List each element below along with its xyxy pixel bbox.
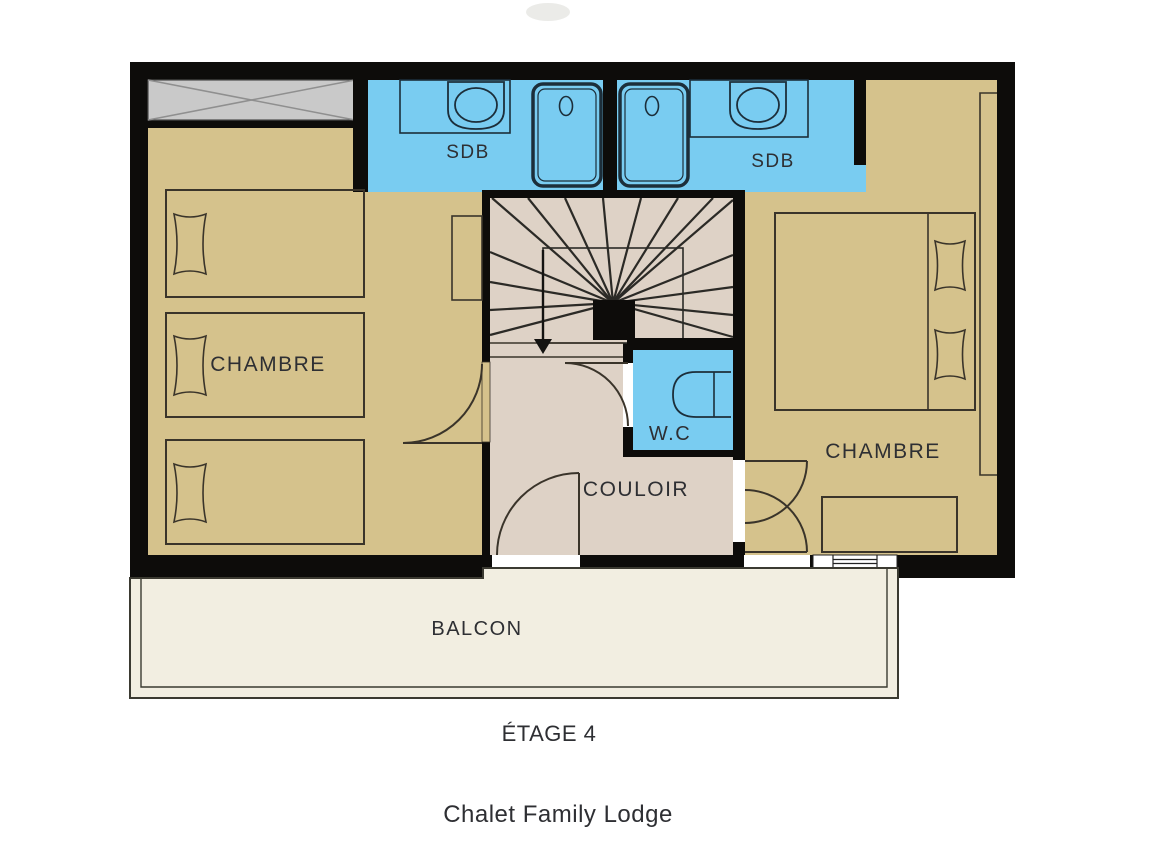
opening-bedroom-left (482, 362, 490, 442)
corridor-room-right (623, 457, 733, 555)
label-corridor: COULOIR (583, 478, 689, 501)
stair-post (593, 300, 635, 340)
window (813, 555, 897, 568)
opening-bedroom-right (733, 460, 745, 542)
floor-plan-page: SDB SDB CHAMBRE CHAMBRE W.C COULOIR BALC… (0, 0, 1152, 843)
floor-plan: SDB SDB CHAMBRE CHAMBRE W.C COULOIR BALC… (0, 0, 1152, 843)
opening-bedroom-balcony (744, 555, 810, 568)
hatched-void (148, 80, 355, 120)
label-bedroom-right: CHAMBRE (825, 440, 941, 463)
label-bathroom-right: SDB (751, 151, 795, 172)
page-title: Chalet Family Lodge (443, 801, 673, 828)
label-bathroom-left: SDB (446, 142, 490, 163)
floor-caption: ÉTAGE 4 (502, 721, 597, 746)
label-balcony: BALCON (431, 618, 522, 640)
opening-corridor-balcony (492, 555, 580, 568)
watermark-smudge (526, 3, 570, 21)
label-bedroom-left: CHAMBRE (210, 353, 326, 376)
label-wc: W.C (649, 423, 691, 445)
bedroom-left-room (148, 128, 482, 555)
